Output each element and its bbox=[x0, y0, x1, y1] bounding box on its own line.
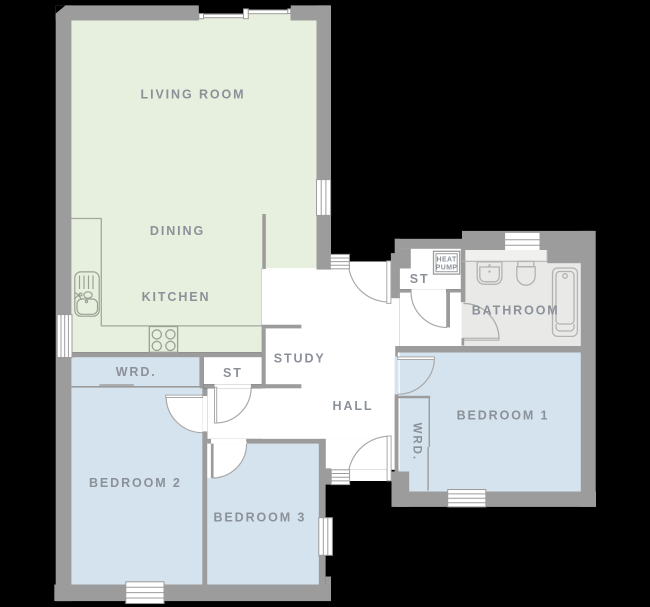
svg-text:PUMP: PUMP bbox=[436, 265, 458, 272]
svg-text:BEDROOM 2: BEDROOM 2 bbox=[89, 476, 182, 490]
svg-text:HEAT: HEAT bbox=[437, 257, 457, 264]
svg-text:LIVING ROOM: LIVING ROOM bbox=[141, 88, 246, 102]
svg-text:DINING: DINING bbox=[150, 224, 205, 238]
svg-text:ST: ST bbox=[223, 366, 243, 380]
svg-text:WRD.: WRD. bbox=[116, 365, 157, 379]
svg-text:ST: ST bbox=[410, 272, 430, 286]
svg-text:STUDY: STUDY bbox=[274, 351, 326, 365]
svg-text:BATHROOM: BATHROOM bbox=[472, 303, 560, 317]
svg-text:HALL: HALL bbox=[333, 399, 374, 413]
svg-text:BEDROOM 1: BEDROOM 1 bbox=[457, 409, 550, 423]
svg-text:WRD.: WRD. bbox=[411, 423, 423, 461]
svg-text:BEDROOM 3: BEDROOM 3 bbox=[213, 510, 306, 524]
svg-text:KITCHEN: KITCHEN bbox=[142, 290, 211, 304]
